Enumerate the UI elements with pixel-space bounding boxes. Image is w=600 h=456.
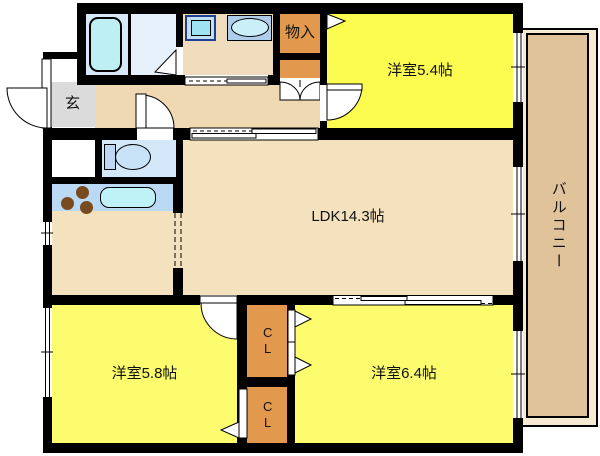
storage-folding-door — [280, 78, 320, 100]
entrance-door — [7, 59, 51, 128]
room-5-4-door — [320, 14, 362, 121]
window — [511, 33, 525, 102]
toilet-door — [136, 94, 174, 140]
room-5-8-door — [200, 295, 237, 339]
window — [511, 167, 525, 261]
window — [511, 331, 525, 418]
closet-upper-door — [288, 310, 311, 375]
window — [41, 222, 53, 245]
washroom-sliding-door — [185, 77, 268, 85]
window — [41, 308, 53, 397]
floor-plan: 物入 洋室5.4帖 玄 LDK14.3帖 洋室5.8帖 洋室6.4帖 CL CL… — [0, 0, 600, 456]
closet-lower-door — [221, 389, 247, 438]
kitchen-opening-dashes — [175, 213, 181, 268]
ldk-room-6-4-sliding-door — [333, 296, 493, 306]
plan-symbols — [0, 0, 600, 456]
hallway-ldk-sliding-door — [190, 128, 318, 140]
washroom-door — [155, 47, 183, 75]
